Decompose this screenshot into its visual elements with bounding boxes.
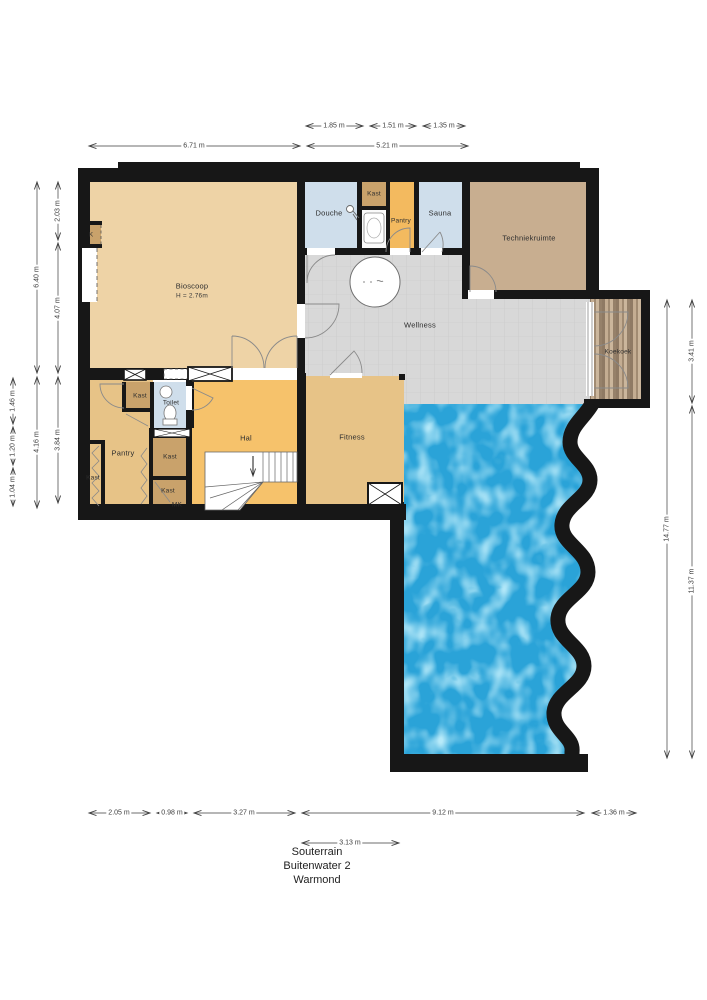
dim-right-outer-1: 3.41 m <box>689 338 696 363</box>
label-toilet: Toilet <box>163 400 179 407</box>
plan-floor-name: Souterrain <box>237 845 397 859</box>
dim-left-inner-3: 3.84 m <box>55 427 62 452</box>
dim-top-5: 5.21 m <box>374 143 399 150</box>
plan-city: Warmond <box>237 873 397 887</box>
label-pantry-bottom: Pantry <box>112 449 135 458</box>
plan-title-block: Souterrain Buitenwater 2 Warmond <box>237 845 397 887</box>
closet-opening <box>164 369 188 379</box>
floor-plan: Bioscoop H = 2.76m K Douche Kast Pantry … <box>0 0 707 1000</box>
label-bioscoop-height: H = 2.76m <box>176 293 208 300</box>
label-k-closet: K <box>89 232 94 239</box>
label-douche: Douche <box>315 209 342 218</box>
dim-right-inner-1: 14.77 m <box>664 514 671 543</box>
pool-water-shadows <box>404 404 592 760</box>
dim-top-3: 1.35 m <box>431 123 456 130</box>
label-kast-b: Kast <box>86 475 100 482</box>
label-wellness: Wellness <box>404 321 436 330</box>
label-pantry-top: Pantry <box>391 218 411 225</box>
label-bioscoop: Bioscoop <box>176 282 208 291</box>
koekoek-window <box>586 302 594 396</box>
window-niche <box>82 248 97 302</box>
room-bioscoop <box>86 180 301 372</box>
dim-left-outer-2: 1.20 m <box>10 433 17 458</box>
label-kast-d: Kast <box>161 488 175 495</box>
dim-left-mid-2: 4.16 m <box>34 429 41 454</box>
label-mk: MK <box>172 502 182 509</box>
dim-bottom-1: 2.05 m <box>106 810 131 817</box>
dim-top-1: 1.85 m <box>321 123 346 130</box>
swimming-pool <box>404 404 592 760</box>
dim-left-mid-1: 6.40 m <box>34 264 41 289</box>
dim-left-outer-3: 1.04 m <box>10 474 17 499</box>
shower-icon <box>347 206 354 213</box>
dim-left-inner-2: 4.07 m <box>55 295 62 320</box>
dim-left-inner-1: 2.03 m <box>55 198 62 223</box>
label-fitness: Fitness <box>339 433 365 442</box>
dim-bottom-4: 9.12 m <box>430 810 455 817</box>
dim-left-outer-1: 1.46 m <box>10 388 17 413</box>
label-sauna: Sauna <box>429 209 452 218</box>
label-kast-top: Kast <box>367 191 381 198</box>
dim-top-2: 1.51 m <box>380 123 405 130</box>
dim-right-outer-2: 11.37 m <box>689 567 696 596</box>
toilet-sink <box>160 386 172 398</box>
hot-tub <box>350 257 400 307</box>
dim-bottom-2: 0.98 m <box>159 810 184 817</box>
dim-top-4: 6.71 m <box>181 143 206 150</box>
label-kast-a: Kast <box>133 393 147 400</box>
label-techniekruimte: Techniekruimte <box>502 234 555 243</box>
label-hal: Hal <box>240 434 252 443</box>
label-kast-c: Kast <box>163 454 177 461</box>
label-koekoek: Koekoek <box>605 349 632 356</box>
plan-address: Buitenwater 2 <box>237 859 397 873</box>
dim-bottom-5: 1.36 m <box>601 810 626 817</box>
dim-bottom-3: 3.27 m <box>231 810 256 817</box>
room-pantry-top <box>388 180 415 252</box>
